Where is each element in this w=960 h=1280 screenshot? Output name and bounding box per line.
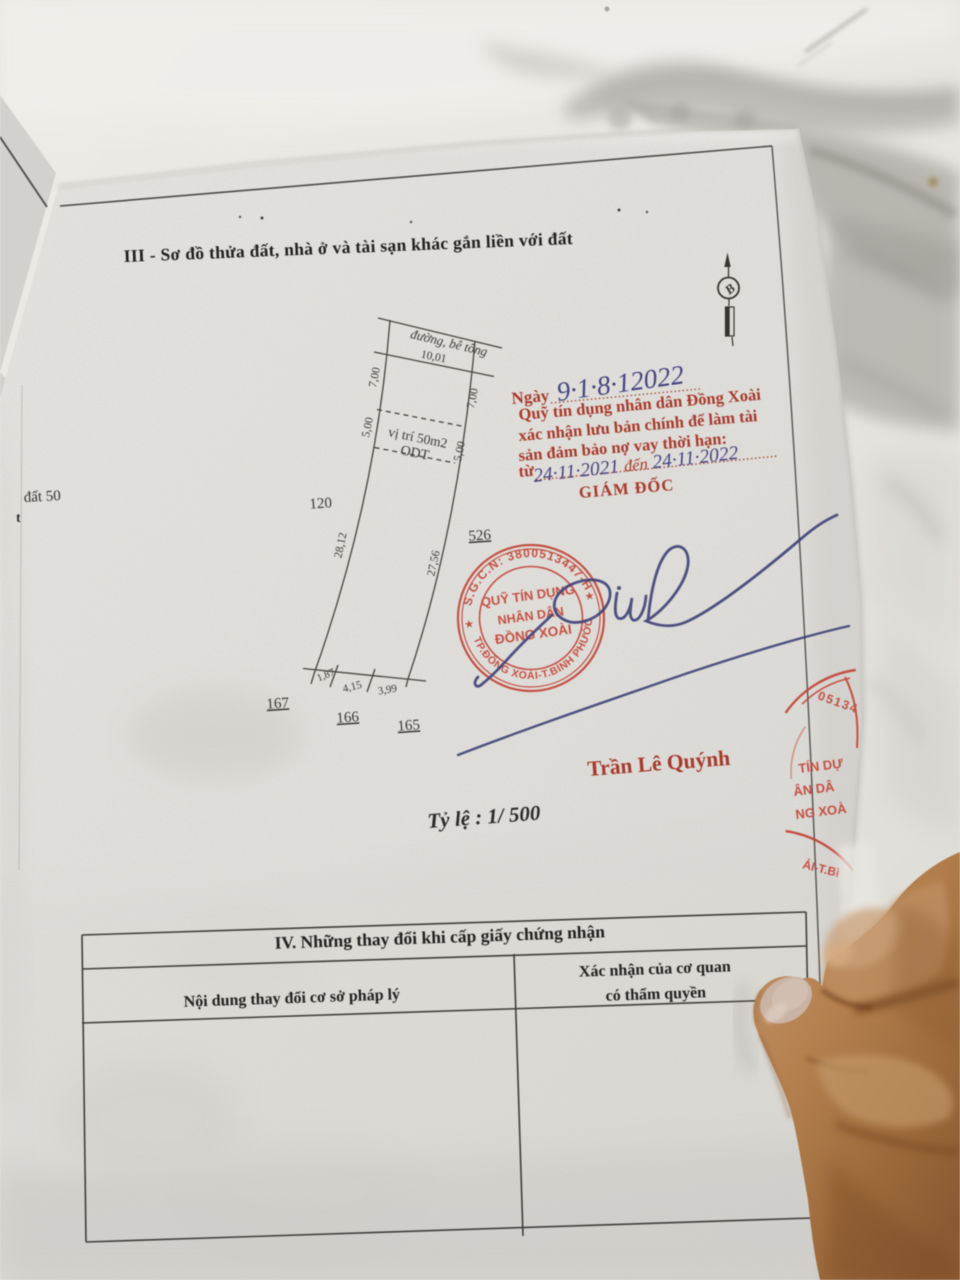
svg-text:526: 526	[468, 527, 492, 545]
svg-text:có thẩm quyền: có thẩm quyền	[605, 984, 706, 1004]
svg-text:167: 167	[266, 695, 290, 713]
svg-text:120: 120	[309, 495, 333, 513]
svg-text:★: ★	[464, 618, 476, 631]
svg-text:★: ★	[584, 590, 596, 603]
svg-text:t: t	[16, 511, 21, 526]
svg-text:166: 166	[336, 709, 360, 727]
svg-text:đất 50: đất 50	[23, 488, 61, 506]
svg-text:165: 165	[397, 717, 421, 735]
